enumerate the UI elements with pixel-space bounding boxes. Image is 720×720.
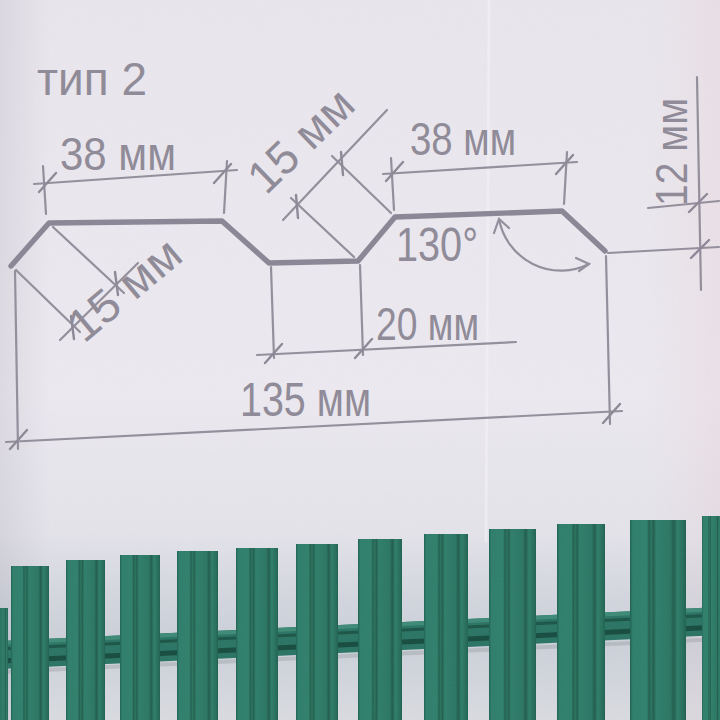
product-profile-figure: тип 2 38 мм 15 мм 15 мм xyxy=(0,0,720,720)
photo-grain-overlay xyxy=(0,0,720,720)
